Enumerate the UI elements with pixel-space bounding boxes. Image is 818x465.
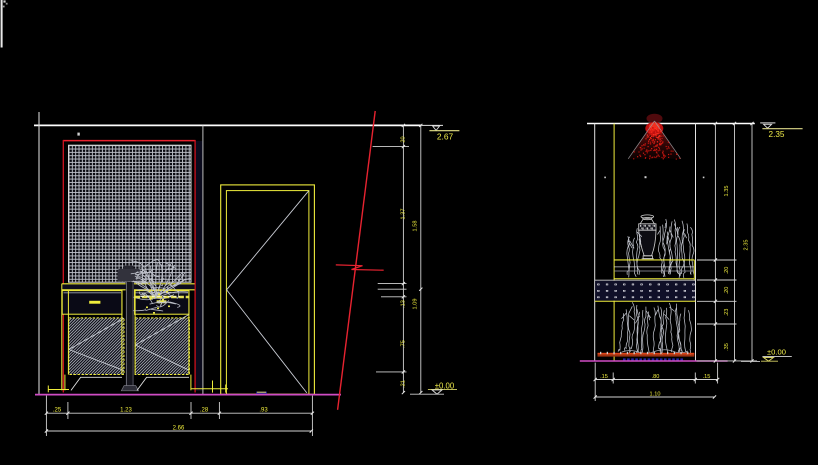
svg-text:.20: .20 <box>724 267 730 275</box>
svg-text:20: 20 <box>401 136 407 142</box>
svg-text:.21: .21 <box>401 380 407 388</box>
svg-text:1.09: 1.09 <box>413 299 419 310</box>
svg-text:.28: .28 <box>200 408 209 414</box>
svg-text:.80: .80 <box>652 374 660 380</box>
svg-text:.20: .20 <box>724 287 730 295</box>
svg-text:.93: .93 <box>259 408 268 414</box>
svg-text:.13: .13 <box>401 300 407 308</box>
svg-text:1.10: 1.10 <box>650 392 661 398</box>
svg-text:.35: .35 <box>724 343 730 351</box>
svg-text:.15: .15 <box>703 374 711 380</box>
svg-text:1.35: 1.35 <box>724 186 730 197</box>
svg-text:.25: .25 <box>53 408 62 414</box>
svg-text:2.67: 2.67 <box>437 132 454 142</box>
svg-text:.23: .23 <box>724 309 730 317</box>
svg-text:2.66: 2.66 <box>173 426 185 432</box>
svg-text:1.37: 1.37 <box>401 209 407 220</box>
svg-text:1.23: 1.23 <box>120 408 132 414</box>
svg-text:2.35: 2.35 <box>769 130 785 139</box>
svg-text:.75: .75 <box>401 340 407 348</box>
svg-text:.15: .15 <box>600 374 608 380</box>
svg-text:2.35: 2.35 <box>744 240 750 251</box>
svg-text:±0.00: ±0.00 <box>767 347 786 356</box>
svg-text:1.58: 1.58 <box>413 221 419 232</box>
